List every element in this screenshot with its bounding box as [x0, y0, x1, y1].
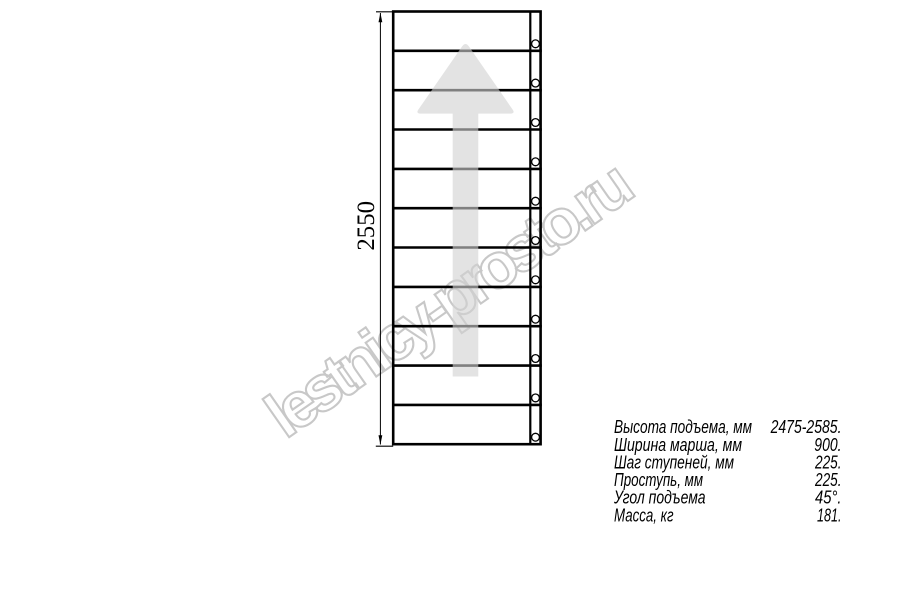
- svg-text:2550: 2550: [353, 201, 380, 251]
- svg-text:Масса, кг: Масса, кг: [614, 505, 674, 525]
- svg-text:181.: 181.: [817, 505, 842, 525]
